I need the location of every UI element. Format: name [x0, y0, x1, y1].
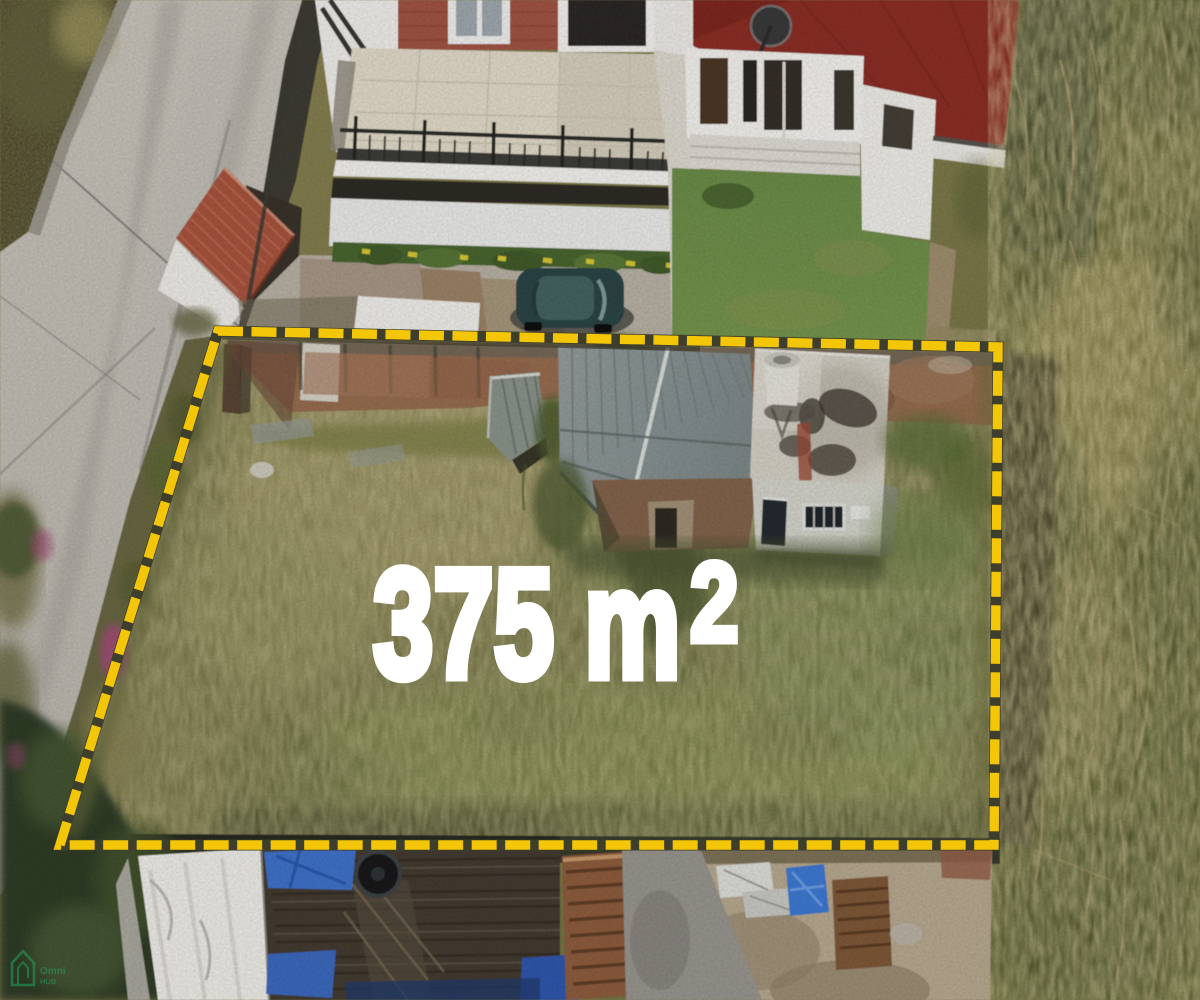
svg-text:2: 2 — [690, 541, 739, 666]
svg-text:375 m: 375 m — [373, 538, 681, 711]
svg-text:Omni: Omni — [40, 966, 66, 977]
svg-text:HUB: HUB — [40, 977, 57, 986]
